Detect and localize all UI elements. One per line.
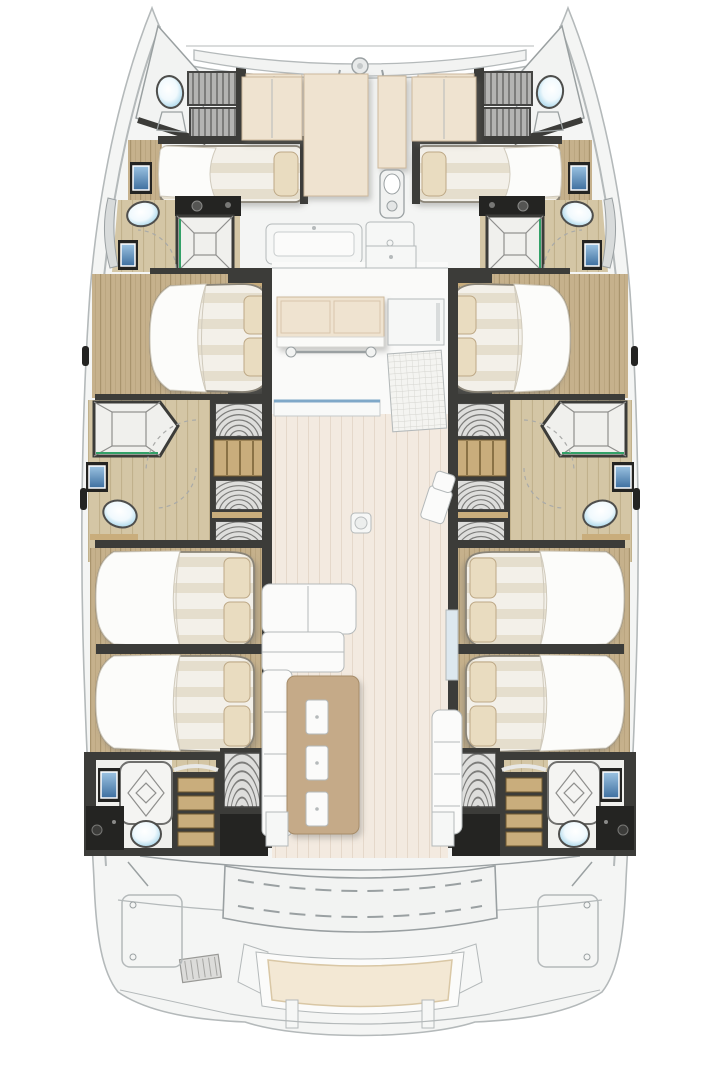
floor-plan-canvas	[0, 0, 720, 1080]
bath-counter	[175, 196, 241, 216]
sliding-door-panel	[446, 610, 458, 680]
floor-hatch	[351, 513, 371, 533]
dinette-table	[287, 676, 359, 834]
sunpad-column	[378, 76, 406, 168]
forward-bathroom	[104, 196, 241, 272]
galley-cabinet	[388, 299, 444, 345]
vanity-sink	[130, 162, 152, 194]
aft-door-post-port	[266, 812, 288, 846]
aft-island-bed-2	[96, 655, 254, 752]
door-sill	[90, 534, 138, 540]
sunpad-center	[304, 74, 368, 196]
sink	[98, 768, 120, 802]
forward-island-bed	[150, 284, 270, 392]
pillow	[224, 602, 250, 642]
locker-sill	[212, 512, 266, 518]
fore-bench	[266, 224, 362, 264]
aft-galley-counter	[274, 400, 380, 416]
pillow	[224, 706, 250, 746]
galley-counter	[277, 297, 384, 347]
cabinet	[86, 806, 124, 850]
faucet	[192, 201, 202, 211]
transom-post-right	[422, 1000, 434, 1028]
drain	[225, 202, 231, 208]
cleat	[82, 346, 89, 366]
bow-roller-pin	[357, 63, 363, 69]
anchor-windlass	[380, 170, 404, 218]
dark-locker	[220, 814, 268, 856]
shower	[94, 402, 178, 456]
shower	[177, 216, 233, 272]
aft-island-bed-1	[96, 551, 254, 648]
shower	[120, 762, 172, 824]
entry-locker	[366, 246, 416, 268]
salon	[262, 246, 462, 858]
vent-grille	[180, 954, 222, 982]
pillow	[224, 558, 250, 598]
aft-bulkhead-1	[95, 540, 268, 548]
toilet	[131, 821, 161, 847]
sink	[86, 462, 108, 492]
forward-single-berth	[159, 146, 304, 202]
bed-divider	[96, 644, 264, 654]
transom-post-left	[286, 1000, 298, 1028]
pillow	[274, 152, 298, 196]
companionway-steps	[214, 440, 264, 476]
pillow	[224, 662, 250, 702]
handle	[92, 825, 102, 835]
aft-door-post-starboard	[432, 812, 454, 846]
cleat	[80, 488, 87, 510]
entry-grid-mat	[387, 350, 446, 432]
companionway-stairs	[174, 766, 218, 852]
catamaran-floor-plan	[0, 0, 720, 1080]
sink	[118, 240, 138, 270]
